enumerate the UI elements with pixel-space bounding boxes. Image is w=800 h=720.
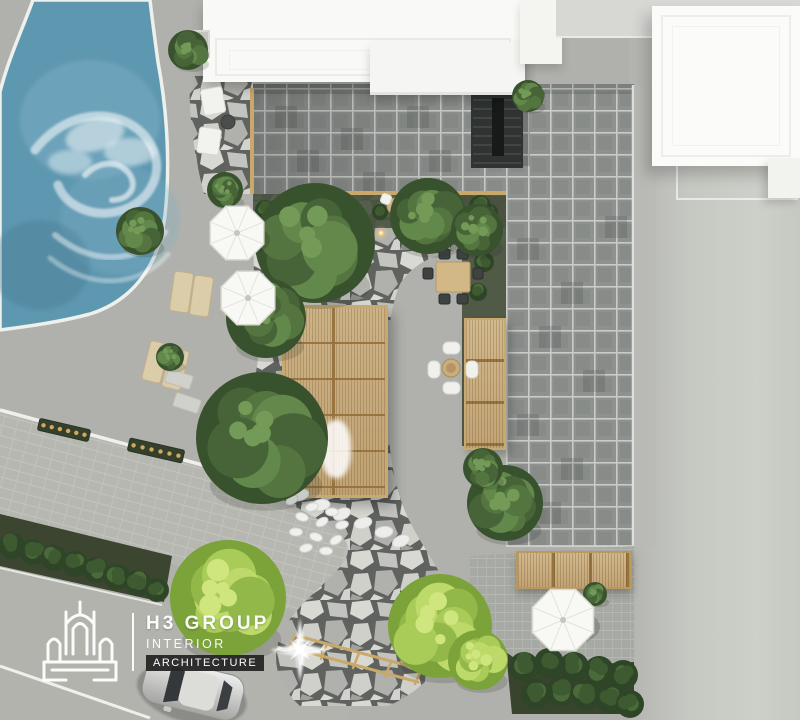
tree-dark (512, 80, 546, 114)
white-rock (374, 525, 393, 538)
side-table (221, 115, 235, 129)
white-rock (319, 547, 332, 555)
chair (196, 127, 221, 156)
sofa-seat (443, 342, 460, 354)
chair (457, 294, 468, 304)
logo-tagline-2: ARCHITECTURE (146, 655, 264, 672)
tree-dark (207, 172, 244, 210)
tree-dark (463, 448, 504, 490)
chair (439, 294, 450, 304)
hedge-bush (372, 204, 388, 220)
sofa-seat (428, 361, 440, 378)
round-table (442, 359, 460, 377)
sparkle (270, 618, 330, 682)
tree-dark (168, 30, 209, 72)
hedge-bush (571, 680, 601, 710)
garden-light (375, 227, 387, 239)
logo-divider (132, 613, 134, 671)
chair (200, 86, 226, 115)
white-rock (299, 543, 314, 554)
tree-dark (116, 207, 164, 257)
flower-planter (37, 418, 90, 441)
tree-bright (448, 630, 508, 693)
white-rock (335, 520, 350, 531)
hedge-bush (616, 690, 644, 718)
white-rock (325, 508, 338, 516)
hedge-bush (534, 648, 564, 678)
tree-dark (196, 372, 328, 511)
hedge-bush (546, 676, 576, 706)
white-rock (309, 531, 324, 543)
dining-table (436, 262, 470, 292)
hedge-bush (509, 652, 539, 682)
sofa-seat (443, 382, 460, 394)
hedge-bush (469, 283, 487, 301)
stepping-stone (172, 392, 201, 413)
white-rock (391, 532, 412, 549)
flower-planter (127, 438, 184, 463)
chair (423, 268, 433, 279)
sofa-seat (466, 361, 478, 378)
site-plan-render: H3 GROUP INTERIOR ARCHITECTURE (0, 0, 800, 720)
white-rock (289, 528, 302, 536)
white-rock (314, 515, 329, 528)
logo-tagline-1: INTERIOR (146, 637, 269, 651)
chair (473, 268, 483, 279)
white-rock (295, 511, 310, 523)
logo-building-icon (40, 596, 120, 688)
white-rock (328, 533, 343, 546)
logo-company-text: H3 GROUP (146, 613, 269, 635)
logo-watermark: H3 GROUP INTERIOR ARCHITECTURE (40, 596, 269, 688)
white-rock (353, 515, 373, 531)
